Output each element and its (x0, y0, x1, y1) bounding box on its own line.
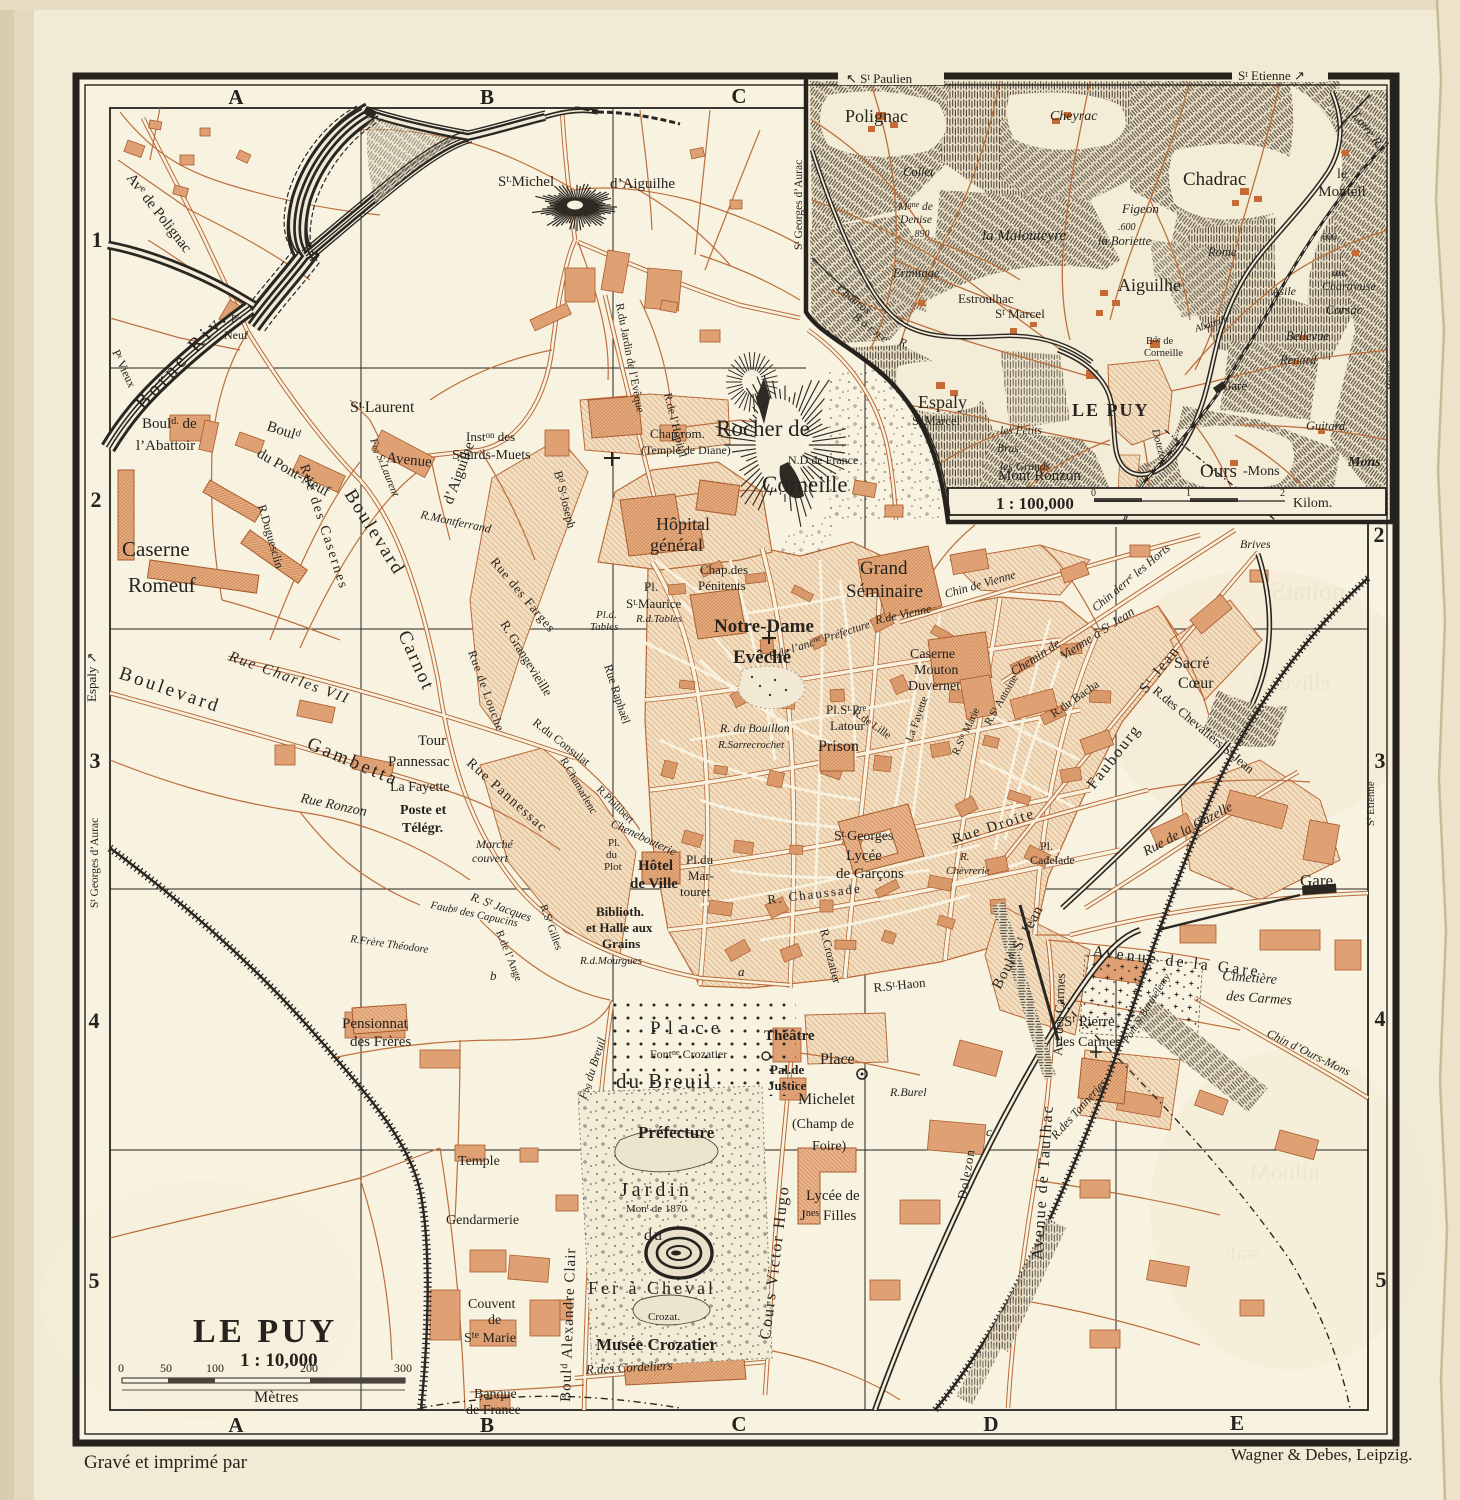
svg-text:Asile: Asile (1271, 284, 1297, 298)
svg-text:Hôtel: Hôtel (638, 858, 673, 874)
svg-text:Gare: Gare (1222, 378, 1247, 393)
svg-text:Pl.du: Pl.du (686, 852, 714, 867)
svg-text:Renard: Renard (1279, 353, 1317, 367)
svg-text:Caserne: Caserne (122, 537, 190, 561)
svg-text:Mètres: Mètres (254, 1389, 298, 1406)
svg-text:Figeon: Figeon (1121, 201, 1159, 216)
svg-text:Hôpital: Hôpital (656, 514, 710, 534)
svg-text:Sourds-Muets: Sourds-Muets (452, 448, 531, 463)
svg-text:2: 2 (91, 487, 102, 512)
svg-text:↖ St Paulien: ↖ St Paulien (846, 71, 913, 86)
svg-text:R.d.Mourgues: R.d.Mourgues (579, 955, 642, 967)
svg-text:de: de (488, 1313, 501, 1328)
svg-text:Notre-Dame: Notre-Dame (714, 616, 814, 637)
svg-text:Michelet: Michelet (798, 1091, 855, 1108)
svg-text:Ermitage: Ermitage (892, 266, 940, 280)
svg-text:3: 3 (1375, 748, 1386, 773)
svg-text:Monteil: Monteil (1318, 184, 1366, 200)
svg-text:Foire): Foire) (812, 1139, 847, 1154)
svg-text:St Georges d’Aurac: St Georges d’Aurac (88, 818, 101, 908)
svg-text:Rome: Rome (1207, 245, 1237, 259)
svg-text:Pl.: Pl. (1040, 839, 1053, 853)
svg-text:600: 600 (1322, 232, 1337, 243)
svg-text:0: 0 (1091, 488, 1096, 499)
svg-text:la Boriette: la Boriette (1098, 234, 1152, 248)
svg-text:St Georges d’Aurac: St Georges d’Aurac (792, 160, 805, 250)
svg-text:Couvent: Couvent (468, 1297, 516, 1312)
svg-text:LE PUY: LE PUY (193, 1313, 338, 1350)
svg-text:Théâtre: Théâtre (764, 1028, 815, 1044)
svg-text:a: a (738, 964, 745, 979)
svg-text:.890: .890 (912, 229, 930, 240)
svg-text:b: b (490, 968, 497, 983)
svg-text:E: E (1230, 1411, 1244, 1435)
svg-text:général: général (650, 535, 703, 555)
svg-text:Mont Ronzon: Mont Ronzon (998, 468, 1081, 484)
svg-text:Pal.de: Pal.de (770, 1062, 805, 1077)
svg-text:R.d.Tables: R.d.Tables (635, 613, 682, 625)
svg-text:Ours: Ours (1200, 461, 1237, 482)
svg-text:Chèvrerie: Chèvrerie (946, 865, 990, 877)
svg-text:St Etienne ↗: St Etienne ↗ (1238, 68, 1305, 83)
svg-text:Gravé et imprimé par: Gravé et imprimé par (84, 1452, 248, 1473)
svg-text:l’Abattoir: l’Abattoir (136, 438, 195, 454)
svg-text:Gendarmerie: Gendarmerie (446, 1213, 519, 1228)
svg-text:Crozat.: Crozat. (648, 1311, 680, 1323)
svg-text:2: 2 (1374, 522, 1385, 547)
svg-text:Lycée de: Lycée de (806, 1188, 860, 1204)
svg-text:Neuf: Neuf (224, 328, 248, 342)
svg-text:Denise: Denise (899, 214, 932, 226)
svg-text:du Breuil: du Breuil (616, 1069, 713, 1093)
svg-text:Duvernet: Duvernet (908, 679, 960, 694)
svg-text:anc: anc (1332, 265, 1350, 279)
svg-text:Jardin: Jardin (620, 1179, 693, 1201)
svg-text:Biblioth.: Biblioth. (596, 904, 644, 919)
svg-text:R. du Bouillon: R. du Bouillon (719, 721, 790, 735)
svg-text:les Petits: les Petits (1000, 425, 1042, 437)
svg-text:LE PUY: LE PUY (1072, 400, 1150, 420)
svg-text:sraP: sraP (1226, 1243, 1260, 1265)
svg-text:Corneille: Corneille (1144, 348, 1183, 359)
svg-text:Brus: Brus (997, 443, 1019, 455)
svg-text:Grand: Grand (860, 558, 908, 579)
svg-text:de Ville: de Ville (630, 876, 678, 892)
svg-text:1 : 100,000: 1 : 100,000 (996, 494, 1074, 513)
svg-text:Bde de: Bde de (1146, 335, 1173, 347)
svg-text:1: 1 (1186, 488, 1191, 499)
svg-text:Prison: Prison (818, 738, 859, 755)
svg-text:c: c (986, 1124, 992, 1139)
svg-text:Mont de 1870: Mont de 1870 (626, 1202, 687, 1215)
svg-text:5: 5 (89, 1268, 100, 1293)
svg-text:Musée Crozatier: Musée Crozatier (596, 1335, 717, 1354)
svg-text:200: 200 (300, 1361, 318, 1375)
svg-text:Kilom.: Kilom. (1293, 496, 1332, 511)
svg-text:A: A (228, 85, 244, 109)
svg-text:R.: R. (959, 851, 969, 863)
svg-text:Pénitents: Pénitents (698, 578, 746, 593)
svg-text:Temple: Temple (458, 1154, 500, 1169)
svg-text:-Mons: -Mons (1243, 464, 1280, 479)
svg-text:Corsac: Corsac (1326, 303, 1363, 317)
svg-text:la Malouteyre: la Malouteyre (982, 228, 1066, 244)
svg-text:de Garçons: de Garçons (836, 866, 904, 882)
svg-text:4: 4 (1375, 1006, 1386, 1031)
svg-text:Pannessac: Pannessac (388, 754, 450, 770)
svg-text:Bould. de: Bould. de (142, 416, 197, 432)
svg-text:Corneille: Corneille (762, 472, 848, 497)
svg-text:Lycée: Lycée (846, 848, 882, 864)
svg-text:Pl.: Pl. (644, 579, 658, 594)
svg-text:Bellevue: Bellevue (1286, 329, 1329, 343)
svg-text:Banque: Banque (474, 1387, 517, 1402)
svg-text:R.Burel: R.Burel (889, 1085, 927, 1099)
svg-text:Cheyrac: Cheyrac (1050, 109, 1098, 124)
svg-text:Guitard: Guitard (1306, 419, 1346, 433)
svg-text:4: 4 (89, 1008, 100, 1033)
svg-text:Chap.des: Chap.des (700, 562, 748, 577)
svg-text:niluoM: niluoM (1249, 1160, 1320, 1186)
svg-text:Estroulhac: Estroulhac (958, 291, 1014, 306)
svg-text:Chartreuse: Chartreuse (1322, 279, 1376, 293)
svg-text:Wagner & Debes, Leipzig.: Wagner & Debes, Leipzig. (1231, 1445, 1412, 1464)
svg-text:Ste Marie: Ste Marie (464, 1330, 516, 1346)
svg-text:du: du (644, 1227, 664, 1244)
svg-text:Gare: Gare (1300, 871, 1333, 890)
svg-text:300: 300 (394, 1361, 412, 1375)
svg-text:2: 2 (1280, 488, 1285, 499)
svg-text:100: 100 (206, 1361, 224, 1375)
svg-text:noitatS: noitatS (1271, 577, 1345, 606)
svg-text:le: le (1337, 167, 1347, 182)
svg-text:couvert: couvert (472, 851, 509, 865)
svg-text:Romeuf: Romeuf (128, 573, 196, 597)
svg-text:Pensionnat: Pensionnat (342, 1016, 409, 1032)
svg-text:R.Sarrecrochet: R.Sarrecrochet (717, 739, 785, 751)
svg-text:Pl.: Pl. (608, 837, 620, 849)
svg-text:Cadelade: Cadelade (1030, 853, 1075, 867)
svg-text:des Frères: des Frères (350, 1034, 411, 1050)
svg-text:N.D.de France: N.D.de France (788, 453, 858, 467)
svg-text:St Pierre: St Pierre (1064, 1014, 1115, 1030)
svg-text:Plot: Plot (604, 861, 622, 873)
svg-text:du: du (606, 849, 618, 861)
svg-text:Tour: Tour (418, 733, 446, 749)
svg-text:Marché: Marché (475, 837, 514, 851)
svg-text:Espaly ↗: Espaly ↗ (84, 652, 99, 702)
svg-text:Brives: Brives (1240, 537, 1271, 551)
svg-text:Place: Place (650, 1018, 726, 1039)
svg-text:Caserne: Caserne (910, 647, 955, 662)
svg-text:.600: .600 (1118, 222, 1136, 233)
svg-text:La Fayette: La Fayette (390, 780, 449, 795)
svg-text:Télégr.: Télégr. (402, 821, 443, 836)
svg-text:Mar-: Mar- (688, 868, 714, 883)
svg-text:Chadrac: Chadrac (1183, 169, 1246, 190)
svg-text:Espaly: Espaly (918, 392, 967, 412)
svg-text:Place: Place (820, 1051, 855, 1068)
svg-text:touret: touret (680, 884, 711, 899)
svg-text:C: C (731, 1412, 746, 1436)
svg-text:5: 5 (1376, 1267, 1387, 1292)
svg-text:Séminaire: Séminaire (846, 581, 923, 602)
svg-text:des Carmes: des Carmes (1056, 1035, 1121, 1050)
svg-text:Aiguilhe: Aiguilhe (1118, 275, 1181, 295)
svg-text:Poste et: Poste et (400, 803, 447, 818)
svg-text:Préfecture: Préfecture (638, 1123, 715, 1142)
svg-text:Cœur: Cœur (1178, 675, 1214, 692)
svg-text:d’Aiguilhe: d’Aiguilhe (610, 176, 675, 192)
svg-text:1: 1 (92, 227, 103, 252)
svg-text:B: B (480, 85, 494, 109)
svg-text:C: C (731, 84, 746, 108)
svg-text:Polignac: Polignac (845, 106, 908, 126)
svg-text:Pl.d.: Pl.d. (595, 609, 617, 621)
svg-text:Fontne Crozatier: Fontne Crozatier (650, 1047, 727, 1061)
svg-text:Mouton: Mouton (914, 663, 958, 678)
svg-text:0: 0 (118, 1361, 124, 1375)
svg-text:Mons: Mons (1347, 455, 1381, 470)
svg-text:Tables: Tables (590, 621, 618, 633)
svg-text:Rocher de: Rocher de (716, 416, 810, 441)
svg-text:et Halle aux: et Halle aux (586, 920, 653, 935)
svg-text:3: 3 (90, 748, 101, 773)
svg-text:Grains: Grains (602, 936, 640, 951)
svg-text:50: 50 (160, 1361, 172, 1375)
svg-text:D: D (983, 1412, 998, 1436)
svg-text:(Champ de: (Champ de (792, 1117, 854, 1132)
svg-text:Fer à Cheval: Fer à Cheval (588, 1278, 716, 1298)
svg-text:Collet: Collet (903, 165, 934, 179)
